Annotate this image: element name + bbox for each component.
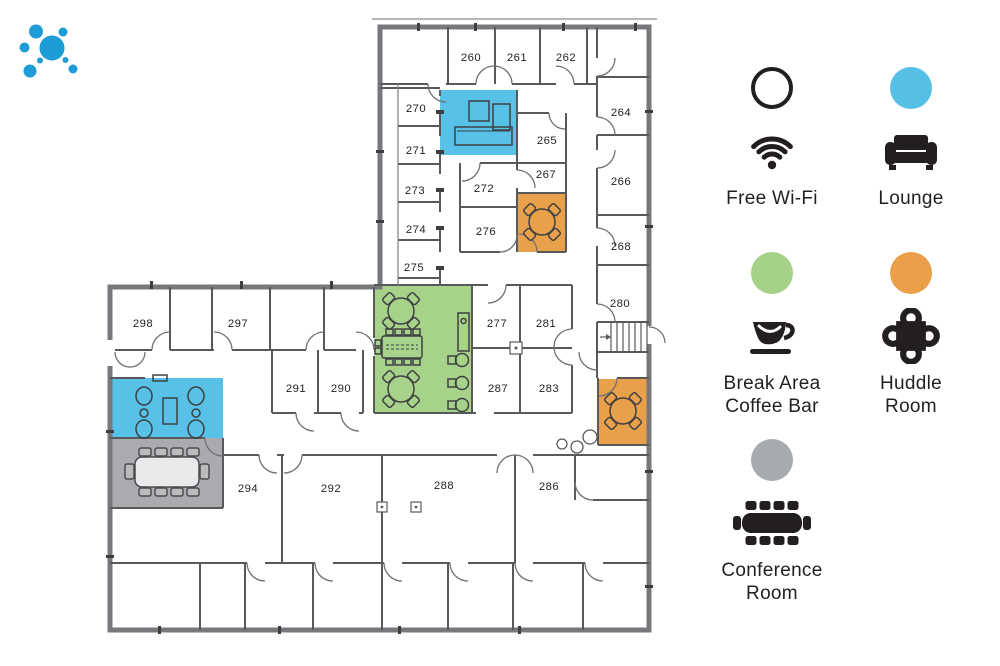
room-label-298: 298: [133, 318, 153, 330]
legend-label-lounge: Lounge: [878, 187, 943, 210]
room-label-276: 276: [476, 226, 496, 238]
room-label-291: 291: [286, 383, 306, 395]
room-label-270: 270: [406, 103, 426, 115]
room-label-290: 290: [331, 383, 351, 395]
room-label-275: 275: [404, 262, 424, 274]
room-label-292: 292: [321, 483, 341, 495]
room-label-288: 288: [434, 480, 454, 492]
room-label-286: 286: [539, 481, 559, 493]
room-label-281: 281: [536, 318, 556, 330]
room-label-261: 261: [507, 52, 527, 64]
room-label-266: 266: [611, 176, 631, 188]
room-label-297: 297: [228, 318, 248, 330]
room-label-264: 264: [611, 107, 631, 119]
wifi-circle: [751, 67, 793, 109]
legend-item-lounge: Lounge: [821, 67, 1000, 210]
conference-room-circle: [751, 439, 793, 481]
zone-lounge-lower: [112, 378, 223, 438]
room-label-271: 271: [406, 145, 426, 157]
coffee-cup-icon: [740, 308, 804, 364]
conference-table-icon: [732, 495, 812, 551]
room-label-287: 287: [488, 383, 508, 395]
room-label-274: 274: [406, 224, 426, 236]
wifi-icon: [740, 123, 804, 179]
couch-icon: [879, 123, 943, 179]
room-label-268: 268: [611, 241, 631, 253]
room-label-273: 273: [405, 185, 425, 197]
legend-item-conference-room: Conference Room: [682, 439, 862, 605]
room-label-265: 265: [537, 135, 557, 147]
legend-label-break-area: Break Area Coffee Bar: [724, 372, 821, 418]
room-label-294: 294: [238, 483, 258, 495]
legend-label-conference-room: Conference Room: [721, 559, 822, 605]
room-label-260: 260: [461, 52, 481, 64]
page: 2602612622642652662672682702712722732742…: [0, 0, 1000, 666]
legend-item-huddle-room: Huddle Room: [821, 252, 1000, 418]
room-label-277: 277: [487, 318, 507, 330]
legend-label-free-wifi: Free Wi-Fi: [726, 187, 818, 210]
room-label-280: 280: [610, 298, 630, 310]
room-label-262: 262: [556, 52, 576, 64]
lounge-circle: [890, 67, 932, 109]
legend-label-huddle-room: Huddle Room: [880, 372, 942, 418]
room-label-283: 283: [539, 383, 559, 395]
break-area-circle: [751, 252, 793, 294]
corridor-plants: [557, 430, 597, 453]
stairs-arrow: [606, 334, 611, 340]
huddle-table-icon: [879, 308, 943, 364]
room-label-267: 267: [536, 169, 556, 181]
huddle-room-circle: [890, 252, 932, 294]
room-label-272: 272: [474, 183, 494, 195]
